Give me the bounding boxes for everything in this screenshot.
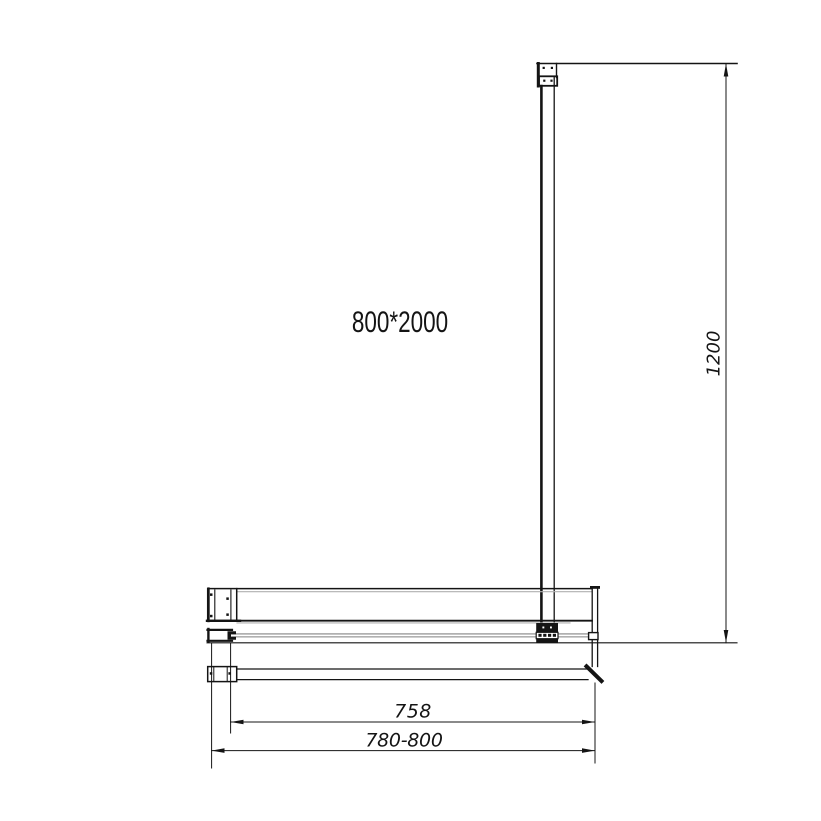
screw-dot	[543, 67, 545, 69]
clamp-screw-dot	[550, 627, 552, 629]
technical-drawing-canvas: 800*2000 1200 758 780-800	[0, 0, 821, 821]
clamp-dash	[548, 634, 551, 637]
clamp-dash	[553, 634, 556, 637]
screw-dot	[210, 593, 213, 596]
screw-dot	[226, 597, 229, 600]
dim-758-label: 758	[394, 701, 432, 723]
drawing-background	[0, 0, 821, 821]
product-size-label: 800*2000	[352, 305, 448, 339]
clamp-dash	[543, 634, 546, 637]
screw-dot	[226, 613, 229, 616]
panel-end-cap	[590, 586, 600, 589]
screw-dot	[550, 80, 552, 82]
bar-clamp-bottom	[536, 639, 558, 643]
glass-end-stopper	[589, 633, 598, 640]
screw-dot	[543, 80, 545, 82]
screw-dot	[551, 67, 553, 69]
clamp-dash	[538, 634, 541, 637]
screw-dot	[210, 615, 213, 618]
screw-dot	[228, 672, 231, 675]
bar-clamp-top	[536, 623, 558, 632]
clamp-screw-dot	[542, 627, 544, 629]
dim-1200-label: 1200	[704, 331, 725, 377]
dim-780-800-label: 780-800	[365, 730, 442, 752]
screw-dot	[210, 672, 213, 675]
